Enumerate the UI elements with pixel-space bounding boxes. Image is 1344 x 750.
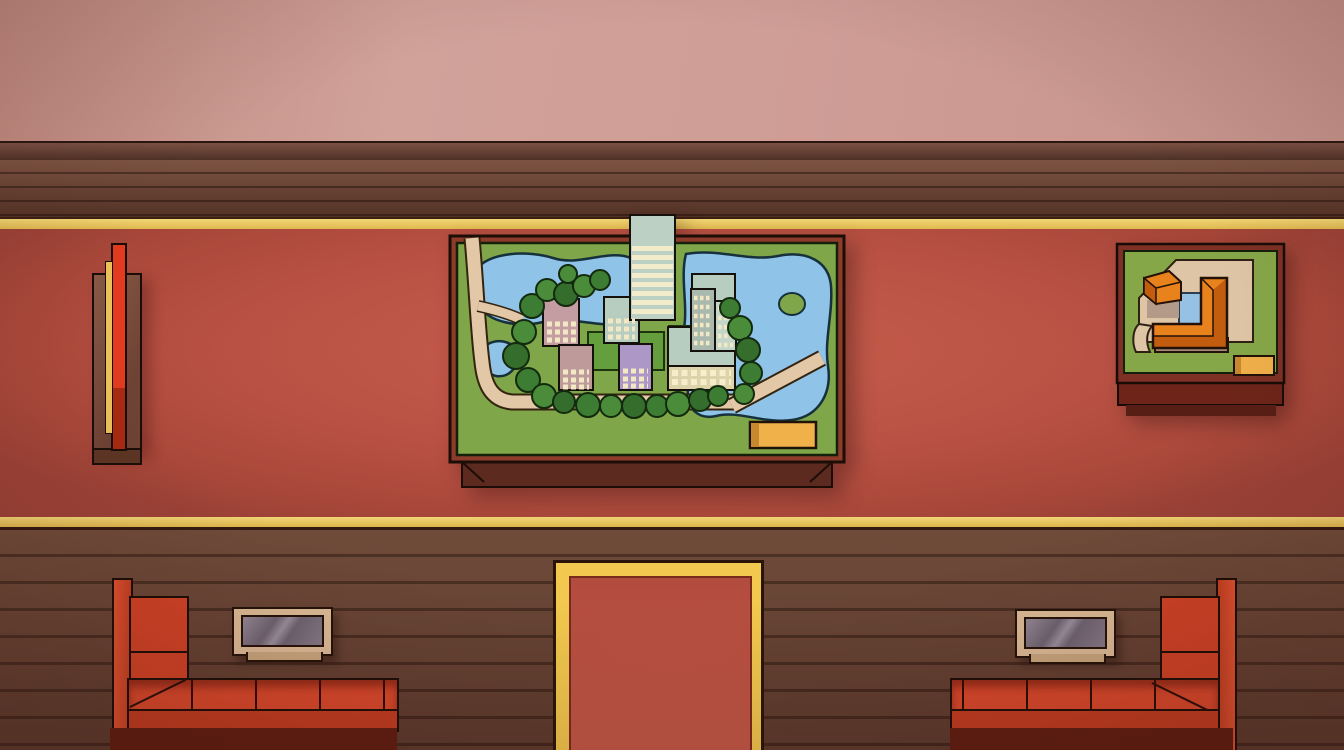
model-base-lower	[1126, 405, 1276, 416]
model-box-building	[1144, 271, 1181, 304]
windows-layer	[0, 0, 1344, 160]
city-model-exhibit[interactable]	[448, 210, 848, 495]
gold-border-bottom	[0, 517, 1344, 530]
model-island	[779, 293, 805, 315]
museum-hall-scene	[0, 0, 1344, 750]
wall-panel-red-edge	[111, 243, 127, 451]
model-plaque	[1234, 356, 1274, 375]
couch-left-base	[110, 728, 397, 750]
couch-left-backrest	[129, 596, 189, 655]
wall-baseboard	[0, 141, 1344, 162]
entrance-carpet	[569, 576, 752, 750]
table-glass-left	[241, 615, 324, 647]
courtyard-model-exhibit[interactable]	[1113, 238, 1288, 423]
model-plaque	[750, 422, 816, 448]
couch-right-base	[950, 728, 1233, 750]
couch-right-backrest	[1160, 596, 1220, 655]
table-base-left	[246, 652, 323, 662]
table-glass-right	[1024, 617, 1107, 649]
model-base	[1118, 383, 1283, 405]
upper-wood-floor	[0, 160, 1344, 217]
table-base-right	[1029, 654, 1106, 664]
wall-panel-gold-edge	[105, 261, 113, 434]
